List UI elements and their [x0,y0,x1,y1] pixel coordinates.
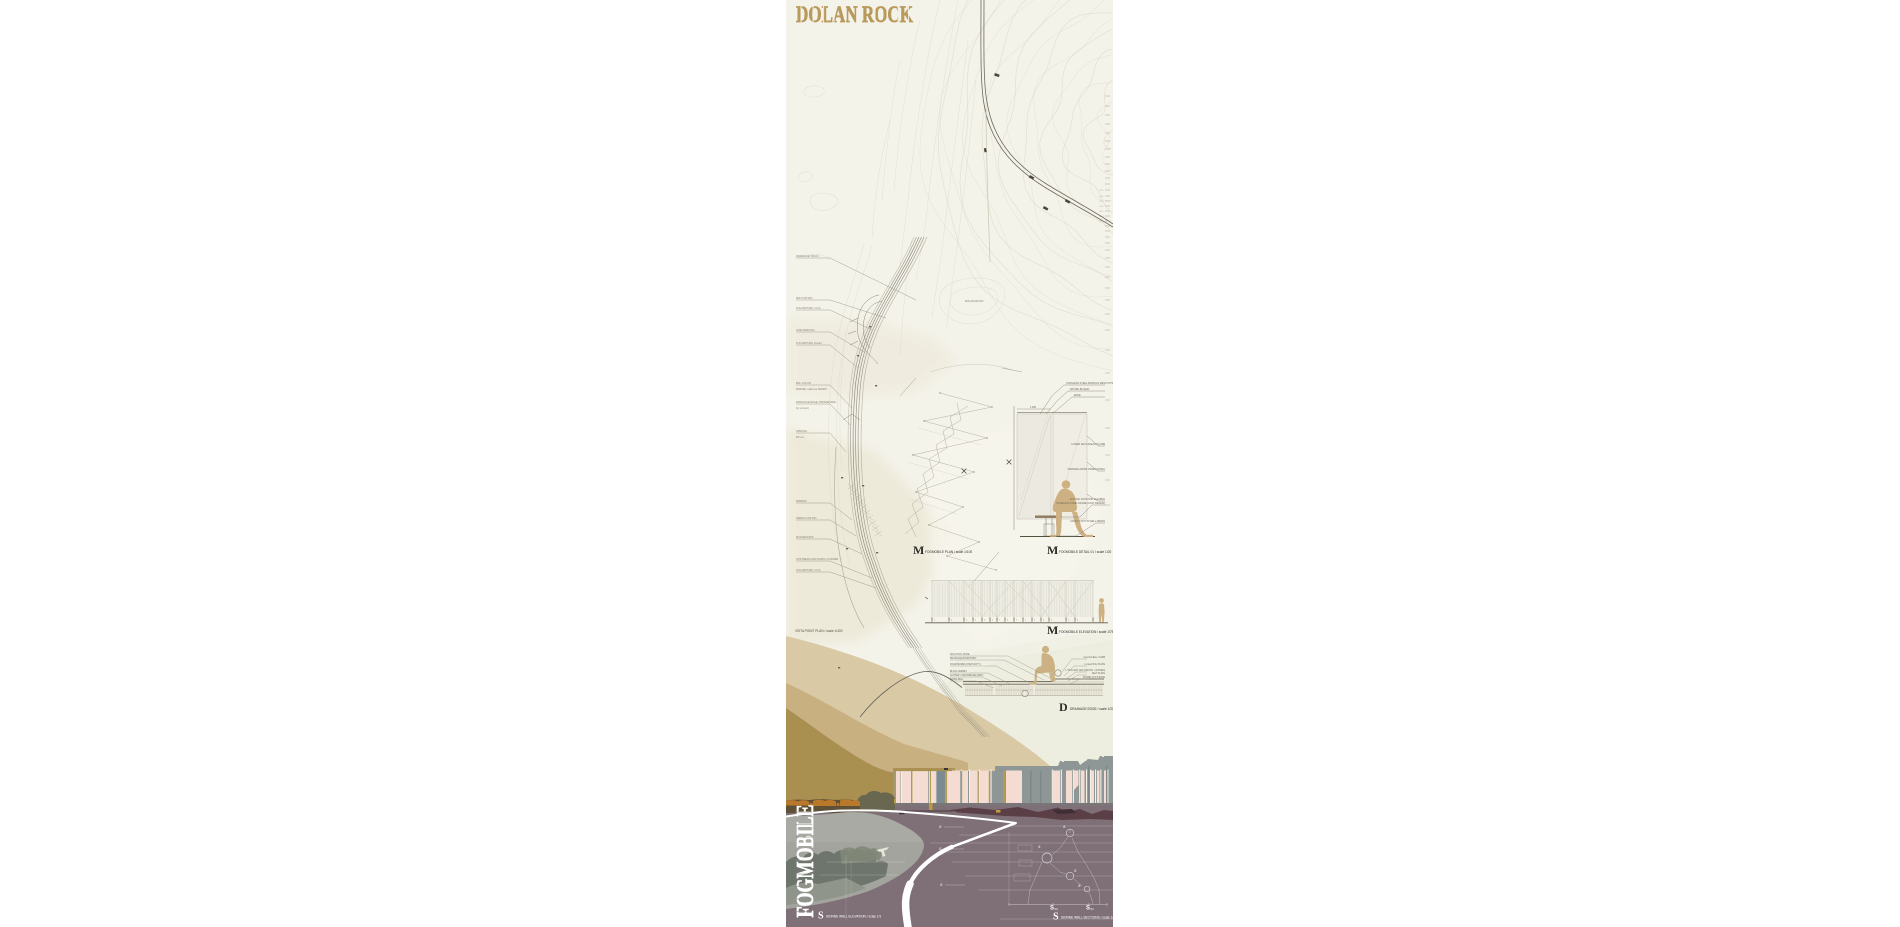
svg-text:Concord Elev. CURB: Concord Elev. CURB [1084,656,1106,659]
svg-text:SIONNE WALL ELEVATION / scale: SIONNE WALL ELEVATION / scale 1/1 [826,915,881,919]
svg-text:M: M [1047,623,1058,637]
svg-text:STAINLESS STEEL PERFOLD MESH (: STAINLESS STEEL PERFOLD MESH (WTR) [1066,382,1115,385]
svg-text:01: 01 [1091,907,1095,911]
svg-text:1.485: 1.485 [1030,406,1037,409]
svg-text:M: M [1047,543,1058,557]
svg-text:STAINLESS STEEL FRAME (CAST DE: STAINLESS STEEL FRAME (CAST DESIGN) [1056,502,1105,505]
svg-text:GROUT FOOT IN WELL DRESS: GROUT FOOT IN WELL DRESS [1070,520,1105,523]
svg-text:AUSTRAL ROTATION FLEXIBLE: AUSTRAL ROTATION FLEXIBLE [1070,498,1106,501]
svg-text:LOWER SEYA (BLEACH) CRIB: LOWER SEYA (BLEACH) CRIB [1071,443,1105,446]
svg-text:PERVADE GRIDS FORECASTING: PERVADE GRIDS FORECASTING [1068,468,1106,471]
svg-text:S: S [818,911,824,922]
svg-text:GUTTER / ANCHORAGE (WET): GUTTER / ANCHORAGE (WET) [950,674,984,677]
svg-text:FOG RETURN (south): FOG RETURN (south) [796,341,822,345]
svg-text:DOLAN ROCK: DOLAN ROCK [965,299,984,303]
svg-text:Lvl and Dirty PLATE: Lvl and Dirty PLATE [1084,663,1105,666]
svg-text:M: M [913,543,924,557]
svg-text:BLACK JERSEY: BLACK JERSEY [950,670,968,673]
svg-text:FOG RETURN / curb: FOG RETURN / curb [796,306,821,310]
svg-text:DR a.m.: DR a.m. [796,436,805,439]
svg-text:BOARD CUTS BASE: BOARD CUTS BASE [1083,676,1105,679]
svg-text:LINE MARKING: LINE MARKING [796,328,815,332]
svg-text:L TWO-WAY LED (CROSS + WOVEN): L TWO-WAY LED (CROSS + WOVEN) [1065,669,1105,672]
svg-text:FOGMOBILE ELEVATION / scale 1/: FOGMOBILE ELEVATION / scale 1/75 [1059,630,1114,634]
svg-text:MUSHROOMS: MUSHROOMS [796,535,814,539]
svg-text:BAL COLOR: BAL COLOR [796,381,811,385]
svg-text:MID STATION: MID STATION [796,296,812,300]
svg-text:DRAINAGE EDGE, PROMENADE: DRAINAGE EDGE, PROMENADE [796,400,836,404]
svg-text:VISTA POINT PLAN / scale 1/400: VISTA POINT PLAN / scale 1/400 [795,629,843,633]
svg-text:FELT PLATE: FELT PLATE [1092,672,1106,675]
svg-text:SPRUNG: SPRUNG [796,429,807,433]
svg-text:MIRROR: MIRROR [796,499,807,503]
svg-text:FOAM MODES (HIGH-DUTY): FOAM MODES (HIGH-DUTY) [950,663,981,666]
svg-text:(by convert): (by convert) [796,407,809,410]
svg-text:D: D [1059,700,1068,714]
svg-text:DRAINAGE TRACK: DRAINAGE TRACK [796,254,819,258]
svg-text:FOG RETURN / curb: FOG RETURN / curb [796,568,821,572]
svg-text:EDGE: EDGE [1074,394,1081,397]
svg-text:WOVEN BLUEAN: WOVEN BLUEAN [1070,388,1090,391]
svg-text:JAVAN PELL: JAVAN PELL [950,678,964,681]
svg-text:FOGMOBILE DETAIL 01 / scale 1/: FOGMOBILE DETAIL 01 / scale 1/20 [1059,550,1111,554]
svg-text:UPSTREAM AND NORTH CORNER: UPSTREAM AND NORTH CORNER [796,557,838,561]
svg-text:MARKED / dark line PERMIT: MARKED / dark line PERMIT [796,388,827,391]
svg-text:03: 03 [1055,907,1059,911]
svg-text:DRAINAGE RHIZOTOMY: DRAINAGE RHIZOTOMY [950,657,977,660]
svg-text:S: S [1086,906,1090,912]
svg-text:SIONNE WALL SECTIONS / scale 1: SIONNE WALL SECTIONS / scale 1/2 [1061,916,1115,920]
svg-text:SERRA STATION: SERRA STATION [796,516,816,520]
svg-text:S: S [1053,912,1059,923]
svg-text:FOGMOBILE PLAN / scale 1/100: FOGMOBILE PLAN / scale 1/100 [925,550,972,554]
svg-text:DRAINAGE EDGE / scale 1/20: DRAINAGE EDGE / scale 1/20 [1070,707,1114,711]
